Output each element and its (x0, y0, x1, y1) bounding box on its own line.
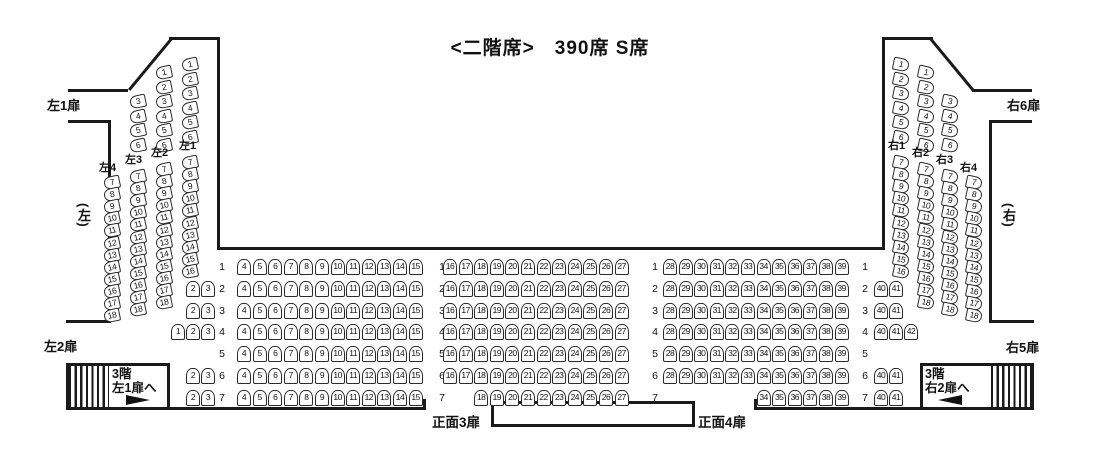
seat[interactable]: 36 (788, 281, 802, 297)
seat[interactable]: 38 (819, 281, 833, 297)
seat[interactable]: 42 (904, 324, 918, 340)
seat[interactable]: 14 (393, 346, 407, 362)
seat[interactable]: 32 (725, 346, 739, 362)
seat[interactable]: 4 (941, 108, 959, 124)
seat[interactable]: 25 (583, 281, 597, 297)
seat[interactable]: 33 (741, 281, 755, 297)
seat[interactable]: 12 (362, 303, 376, 319)
seat[interactable]: 38 (819, 259, 833, 275)
seat[interactable]: 4 (892, 100, 910, 116)
seat[interactable]: 32 (725, 324, 739, 340)
seat[interactable]: 2 (917, 79, 935, 95)
seat[interactable]: 5 (155, 123, 173, 139)
seat[interactable]: 27 (615, 324, 629, 340)
seat[interactable]: 15 (409, 368, 423, 384)
seat[interactable]: 4 (237, 368, 251, 384)
seat[interactable]: 24 (568, 390, 582, 406)
seat[interactable]: 7 (284, 324, 298, 340)
seat[interactable]: 30 (694, 259, 708, 275)
seat[interactable]: 4 (237, 390, 251, 406)
seat[interactable]: 36 (788, 346, 802, 362)
seat[interactable]: 4 (155, 108, 173, 124)
seat[interactable]: 20 (505, 303, 519, 319)
seat[interactable]: 18 (965, 308, 983, 324)
seat[interactable]: 12 (362, 259, 376, 275)
seat[interactable]: 16 (443, 259, 457, 275)
seat[interactable]: 41 (889, 368, 903, 384)
seat[interactable]: 6 (268, 390, 282, 406)
seat[interactable]: 24 (568, 324, 582, 340)
seat[interactable]: 33 (741, 303, 755, 319)
seat[interactable]: 18 (474, 346, 488, 362)
seat[interactable]: 37 (803, 281, 817, 297)
seat[interactable]: 5 (253, 303, 267, 319)
seat[interactable]: 26 (599, 259, 613, 275)
seat[interactable]: 9 (315, 390, 329, 406)
seat[interactable]: 16 (443, 324, 457, 340)
seat[interactable]: 20 (505, 346, 519, 362)
seat[interactable]: 8 (299, 259, 313, 275)
seat[interactable]: 7 (284, 281, 298, 297)
seat[interactable]: 14 (393, 368, 407, 384)
seat[interactable]: 11 (346, 303, 360, 319)
seat[interactable]: 29 (679, 346, 693, 362)
seat[interactable]: 13 (377, 259, 391, 275)
seat[interactable]: 33 (741, 346, 755, 362)
seat[interactable]: 39 (835, 368, 849, 384)
seat[interactable]: 24 (568, 259, 582, 275)
seat[interactable]: 1 (917, 64, 935, 80)
seat[interactable]: 35 (772, 324, 786, 340)
seat[interactable]: 14 (393, 259, 407, 275)
seat[interactable]: 31 (710, 346, 724, 362)
seat[interactable]: 5 (253, 346, 267, 362)
seat[interactable]: 1 (155, 64, 173, 80)
seat[interactable]: 16 (181, 263, 199, 279)
seat[interactable]: 2 (181, 71, 199, 87)
seat[interactable]: 9 (315, 259, 329, 275)
seat[interactable]: 37 (803, 259, 817, 275)
seat[interactable]: 2 (186, 303, 200, 319)
seat[interactable]: 39 (835, 259, 849, 275)
seat[interactable]: 25 (583, 303, 597, 319)
seat[interactable]: 10 (331, 259, 345, 275)
seat[interactable]: 19 (490, 281, 504, 297)
seat[interactable]: 4 (237, 346, 251, 362)
seat[interactable]: 20 (505, 390, 519, 406)
seat[interactable]: 2 (186, 324, 200, 340)
seat[interactable]: 21 (521, 259, 535, 275)
seat[interactable]: 12 (362, 324, 376, 340)
seat[interactable]: 19 (490, 324, 504, 340)
seat[interactable]: 17 (459, 368, 473, 384)
seat[interactable]: 5 (253, 281, 267, 297)
seat[interactable]: 13 (377, 281, 391, 297)
seat[interactable]: 3 (129, 93, 147, 109)
seat[interactable]: 31 (710, 259, 724, 275)
seat[interactable]: 24 (568, 303, 582, 319)
seat[interactable]: 39 (835, 324, 849, 340)
seat[interactable]: 16 (892, 263, 910, 279)
seat[interactable]: 11 (346, 281, 360, 297)
seat[interactable]: 25 (583, 390, 597, 406)
seat[interactable]: 10 (331, 303, 345, 319)
seat[interactable]: 28 (663, 259, 677, 275)
seat[interactable]: 11 (346, 324, 360, 340)
seat[interactable]: 21 (521, 324, 535, 340)
seat[interactable]: 40 (874, 281, 888, 297)
seat[interactable]: 20 (505, 368, 519, 384)
seat[interactable]: 18 (917, 295, 935, 311)
seat[interactable]: 13 (377, 303, 391, 319)
seat[interactable]: 36 (788, 303, 802, 319)
seat[interactable]: 23 (552, 368, 566, 384)
seat[interactable]: 5 (181, 115, 199, 131)
seat[interactable]: 7 (284, 368, 298, 384)
seat[interactable]: 5 (253, 368, 267, 384)
seat[interactable]: 39 (835, 346, 849, 362)
seat[interactable]: 4 (237, 281, 251, 297)
seat[interactable]: 5 (253, 259, 267, 275)
seat[interactable]: 22 (537, 390, 551, 406)
seat[interactable]: 37 (803, 368, 817, 384)
seat[interactable]: 20 (505, 281, 519, 297)
seat[interactable]: 13 (377, 324, 391, 340)
seat[interactable]: 6 (268, 281, 282, 297)
seat[interactable]: 19 (490, 303, 504, 319)
seat[interactable]: 27 (615, 281, 629, 297)
seat[interactable]: 7 (284, 390, 298, 406)
seat[interactable]: 12 (362, 368, 376, 384)
seat[interactable]: 14 (393, 303, 407, 319)
seat[interactable]: 41 (889, 324, 903, 340)
seat[interactable]: 3 (201, 324, 215, 340)
seat[interactable]: 30 (694, 324, 708, 340)
seat[interactable]: 30 (694, 346, 708, 362)
seat[interactable]: 15 (409, 281, 423, 297)
seat[interactable]: 29 (679, 368, 693, 384)
seat[interactable]: 31 (710, 303, 724, 319)
seat[interactable]: 34 (757, 281, 771, 297)
seat[interactable]: 3 (181, 86, 199, 102)
seat[interactable]: 36 (788, 259, 802, 275)
seat[interactable]: 29 (679, 281, 693, 297)
seat[interactable]: 8 (299, 346, 313, 362)
seat[interactable]: 28 (663, 281, 677, 297)
seat[interactable]: 14 (393, 324, 407, 340)
seat[interactable]: 37 (803, 390, 817, 406)
seat[interactable]: 17 (459, 324, 473, 340)
seat[interactable]: 13 (377, 390, 391, 406)
seat[interactable]: 18 (941, 302, 959, 318)
seat[interactable]: 9 (315, 346, 329, 362)
seat[interactable]: 38 (819, 303, 833, 319)
seat[interactable]: 38 (819, 368, 833, 384)
seat[interactable]: 28 (663, 368, 677, 384)
seat[interactable]: 18 (474, 324, 488, 340)
seat[interactable]: 2 (186, 281, 200, 297)
seat[interactable]: 32 (725, 368, 739, 384)
seat[interactable]: 34 (757, 390, 771, 406)
seat[interactable]: 35 (772, 303, 786, 319)
seat[interactable]: 30 (694, 368, 708, 384)
seat[interactable]: 30 (694, 303, 708, 319)
seat[interactable]: 27 (615, 303, 629, 319)
seat[interactable]: 13 (377, 368, 391, 384)
seat[interactable]: 32 (725, 259, 739, 275)
seat[interactable]: 21 (521, 281, 535, 297)
seat[interactable]: 33 (741, 259, 755, 275)
seat[interactable]: 12 (362, 390, 376, 406)
seat[interactable]: 39 (835, 281, 849, 297)
seat[interactable]: 11 (346, 346, 360, 362)
seat[interactable]: 41 (889, 390, 903, 406)
seat[interactable]: 21 (521, 368, 535, 384)
seat[interactable]: 2 (155, 79, 173, 95)
seat[interactable]: 37 (803, 303, 817, 319)
seat[interactable]: 9 (315, 281, 329, 297)
seat[interactable]: 11 (346, 259, 360, 275)
seat[interactable]: 21 (521, 390, 535, 406)
seat[interactable]: 40 (874, 324, 888, 340)
seat[interactable]: 35 (772, 259, 786, 275)
seat[interactable]: 18 (129, 302, 147, 318)
seat[interactable]: 2 (892, 71, 910, 87)
seat[interactable]: 16 (443, 303, 457, 319)
seat[interactable]: 17 (459, 303, 473, 319)
seat[interactable]: 19 (490, 346, 504, 362)
seat[interactable]: 16 (443, 281, 457, 297)
seat[interactable]: 23 (552, 390, 566, 406)
seat[interactable]: 22 (537, 346, 551, 362)
seat[interactable]: 23 (552, 281, 566, 297)
seat[interactable]: 14 (393, 390, 407, 406)
seat[interactable]: 5 (129, 123, 147, 139)
seat[interactable]: 12 (362, 346, 376, 362)
seat[interactable]: 14 (393, 281, 407, 297)
seat[interactable]: 35 (772, 390, 786, 406)
seat[interactable]: 11 (346, 390, 360, 406)
seat[interactable]: 4 (129, 108, 147, 124)
seat[interactable]: 26 (599, 368, 613, 384)
seat[interactable]: 5 (253, 324, 267, 340)
seat[interactable]: 26 (599, 390, 613, 406)
seat[interactable]: 3 (155, 94, 173, 110)
seat[interactable]: 27 (615, 346, 629, 362)
seat[interactable]: 27 (615, 259, 629, 275)
seat[interactable]: 32 (725, 303, 739, 319)
seat[interactable]: 34 (757, 368, 771, 384)
seat[interactable]: 16 (443, 368, 457, 384)
seat[interactable]: 41 (889, 281, 903, 297)
seat[interactable]: 18 (474, 390, 488, 406)
seat[interactable]: 9 (315, 368, 329, 384)
seat[interactable]: 9 (315, 324, 329, 340)
seat[interactable]: 1 (171, 324, 185, 340)
seat[interactable]: 20 (505, 259, 519, 275)
seat[interactable]: 3 (201, 390, 215, 406)
seat[interactable]: 37 (803, 346, 817, 362)
seat[interactable]: 31 (710, 324, 724, 340)
seat[interactable]: 37 (803, 324, 817, 340)
seat[interactable]: 39 (835, 390, 849, 406)
seat[interactable]: 13 (377, 346, 391, 362)
seat[interactable]: 7 (284, 346, 298, 362)
seat[interactable]: 8 (299, 390, 313, 406)
seat[interactable]: 29 (679, 324, 693, 340)
seat[interactable]: 5 (941, 123, 959, 139)
seat[interactable]: 18 (474, 303, 488, 319)
seat[interactable]: 4 (181, 100, 199, 116)
seat[interactable]: 6 (268, 324, 282, 340)
seat[interactable]: 22 (537, 324, 551, 340)
seat[interactable]: 18 (474, 259, 488, 275)
seat[interactable]: 6 (268, 346, 282, 362)
seat[interactable]: 32 (725, 281, 739, 297)
seat[interactable]: 16 (443, 346, 457, 362)
seat[interactable]: 3 (201, 281, 215, 297)
seat[interactable]: 23 (552, 324, 566, 340)
seat[interactable]: 38 (819, 324, 833, 340)
seat[interactable]: 3 (892, 86, 910, 102)
seat[interactable]: 15 (409, 324, 423, 340)
seat[interactable]: 27 (615, 390, 629, 406)
seat[interactable]: 26 (599, 324, 613, 340)
seat[interactable]: 29 (679, 259, 693, 275)
seat[interactable]: 3 (201, 303, 215, 319)
seat[interactable]: 4 (237, 259, 251, 275)
seat[interactable]: 11 (346, 368, 360, 384)
seat[interactable]: 25 (583, 324, 597, 340)
seat[interactable]: 26 (599, 346, 613, 362)
seat[interactable]: 6 (268, 259, 282, 275)
seat[interactable]: 15 (409, 346, 423, 362)
seat[interactable]: 12 (362, 281, 376, 297)
seat[interactable]: 23 (552, 259, 566, 275)
seat[interactable]: 31 (710, 281, 724, 297)
seat[interactable]: 39 (835, 303, 849, 319)
seat[interactable]: 7 (284, 259, 298, 275)
seat[interactable]: 36 (788, 368, 802, 384)
seat[interactable]: 18 (474, 368, 488, 384)
seat[interactable]: 40 (874, 368, 888, 384)
seat[interactable]: 8 (299, 303, 313, 319)
seat[interactable]: 34 (757, 346, 771, 362)
seat[interactable]: 40 (874, 390, 888, 406)
seat[interactable]: 38 (819, 346, 833, 362)
seat[interactable]: 10 (331, 324, 345, 340)
seat[interactable]: 8 (299, 281, 313, 297)
seat[interactable]: 22 (537, 281, 551, 297)
seat[interactable]: 8 (299, 324, 313, 340)
seat[interactable]: 3 (201, 368, 215, 384)
seat[interactable]: 9 (315, 303, 329, 319)
seat[interactable]: 26 (599, 303, 613, 319)
seat[interactable]: 5 (253, 390, 267, 406)
seat[interactable]: 6 (268, 303, 282, 319)
seat[interactable]: 25 (583, 368, 597, 384)
seat[interactable]: 33 (741, 368, 755, 384)
seat[interactable]: 17 (459, 346, 473, 362)
seat[interactable]: 24 (568, 346, 582, 362)
seat[interactable]: 18 (474, 281, 488, 297)
seat[interactable]: 3 (941, 93, 959, 109)
seat[interactable]: 18 (155, 295, 173, 311)
stairs-right-line2: 右2扉へ (925, 381, 969, 395)
seat[interactable]: 34 (757, 324, 771, 340)
seat[interactable]: 25 (583, 346, 597, 362)
seat[interactable]: 4 (917, 108, 935, 124)
seat[interactable]: 36 (788, 390, 802, 406)
seat[interactable]: 22 (537, 368, 551, 384)
seat[interactable]: 25 (583, 259, 597, 275)
seat[interactable]: 22 (537, 303, 551, 319)
seat[interactable]: 24 (568, 281, 582, 297)
seat[interactable]: 36 (788, 324, 802, 340)
seat[interactable]: 33 (741, 324, 755, 340)
seat[interactable]: 41 (889, 303, 903, 319)
seat[interactable]: 2 (186, 390, 200, 406)
seat[interactable]: 19 (490, 368, 504, 384)
seat[interactable]: 29 (679, 303, 693, 319)
seat[interactable]: 27 (615, 368, 629, 384)
seat[interactable]: 1 (181, 56, 199, 72)
seat[interactable]: 21 (521, 346, 535, 362)
seat[interactable]: 38 (819, 390, 833, 406)
seat[interactable]: 34 (757, 303, 771, 319)
seat[interactable]: 15 (409, 390, 423, 406)
seat[interactable]: 5 (892, 115, 910, 131)
seat[interactable]: 17 (459, 281, 473, 297)
seat[interactable]: 31 (710, 368, 724, 384)
seat[interactable]: 15 (409, 259, 423, 275)
seat[interactable]: 7 (284, 303, 298, 319)
seat[interactable]: 28 (663, 346, 677, 362)
seat[interactable]: 10 (331, 346, 345, 362)
seat[interactable]: 19 (490, 259, 504, 275)
seat[interactable]: 20 (505, 324, 519, 340)
seat[interactable]: 26 (599, 281, 613, 297)
seat[interactable]: 35 (772, 346, 786, 362)
seat[interactable]: 17 (459, 259, 473, 275)
seat[interactable]: 8 (299, 368, 313, 384)
seat[interactable]: 23 (552, 346, 566, 362)
seat[interactable]: 3 (917, 94, 935, 110)
seat[interactable]: 30 (694, 281, 708, 297)
seat[interactable]: 22 (537, 259, 551, 275)
seat[interactable]: 21 (521, 303, 535, 319)
seat[interactable]: 35 (772, 281, 786, 297)
seat[interactable]: 23 (552, 303, 566, 319)
seat[interactable]: 2 (186, 368, 200, 384)
seat[interactable]: 15 (409, 303, 423, 319)
seat[interactable]: 10 (331, 368, 345, 384)
seat[interactable]: 28 (663, 324, 677, 340)
seat[interactable]: 18 (103, 308, 121, 324)
seat[interactable]: 4 (237, 324, 251, 340)
seat[interactable]: 28 (663, 303, 677, 319)
seat[interactable]: 10 (331, 390, 345, 406)
seat[interactable]: 10 (331, 281, 345, 297)
seat[interactable]: 4 (237, 303, 251, 319)
seat[interactable]: 6 (268, 368, 282, 384)
seat[interactable]: 24 (568, 368, 582, 384)
seat[interactable]: 19 (490, 390, 504, 406)
seat[interactable]: 40 (874, 303, 888, 319)
seat[interactable]: 34 (757, 259, 771, 275)
seat[interactable]: 35 (772, 368, 786, 384)
seat[interactable]: 5 (917, 123, 935, 139)
